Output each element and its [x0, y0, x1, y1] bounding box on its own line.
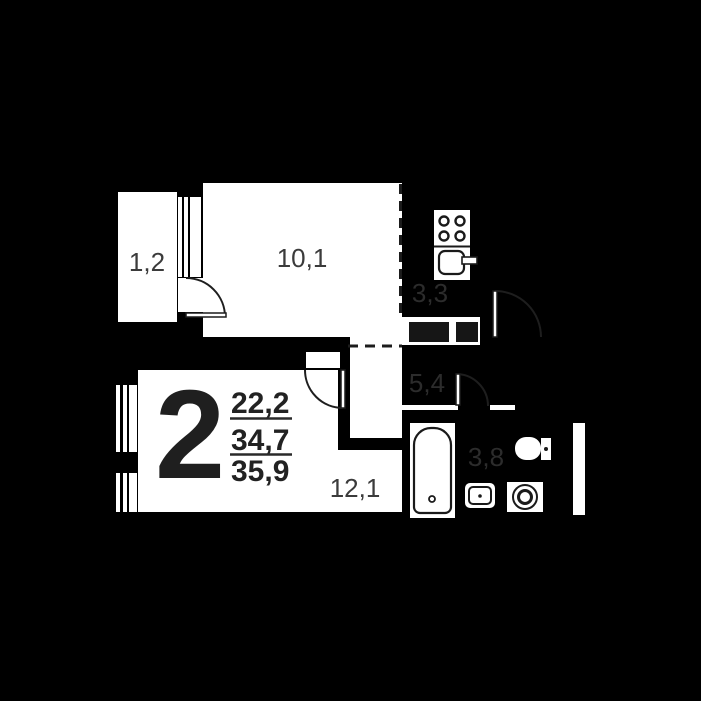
washing-machine-icon	[507, 482, 543, 512]
unit-living-area: 22,2	[231, 387, 289, 420]
label-hall-area: 5,4	[409, 368, 445, 398]
bathroom-door-leaf	[456, 374, 460, 405]
label-kitchen-area: 3,3	[412, 278, 448, 308]
floor-plan-svg: 1,2 10,1 3,3 5,4 3,8 12,1 2 22,2 34,7 35…	[0, 0, 701, 701]
toilet-icon	[515, 437, 551, 460]
label-bedroom-area: 10,1	[277, 243, 328, 273]
label-balcony-area: 1,2	[129, 247, 165, 277]
unit-total-area: 35,9	[231, 455, 289, 488]
duct-void-right	[456, 322, 478, 342]
page-background: { "plan": { "title": "2-room apartment f…	[0, 0, 701, 701]
washbasin-icon	[465, 483, 495, 508]
unit-area-without-balcony: 34,7	[231, 424, 289, 457]
entrance-door-leaf	[493, 291, 497, 337]
balcony-door-opening	[178, 278, 203, 312]
balcony-door-leaf	[186, 313, 226, 317]
label-living-area: 12,1	[330, 473, 381, 503]
window-icon	[116, 385, 137, 452]
duct-void-left	[409, 322, 449, 342]
bathroom-wall-core-left	[402, 405, 458, 410]
bedroom-door-opening	[306, 352, 340, 368]
floor-plan: 1,2 10,1 3,3 5,4 3,8 12,1 2 22,2 34,7 35…	[0, 0, 701, 701]
bathroom-wall-core-right	[490, 405, 515, 410]
bedroom-door-vestibule-fill	[350, 337, 402, 438]
label-bathroom-area: 3,8	[468, 442, 504, 472]
window-icon	[116, 473, 137, 512]
vent-shaft-icon	[573, 423, 585, 515]
bathtub-icon	[410, 423, 455, 518]
bedroom-door-leaf	[341, 370, 345, 408]
unit-rooms-count: 2	[155, 364, 225, 505]
